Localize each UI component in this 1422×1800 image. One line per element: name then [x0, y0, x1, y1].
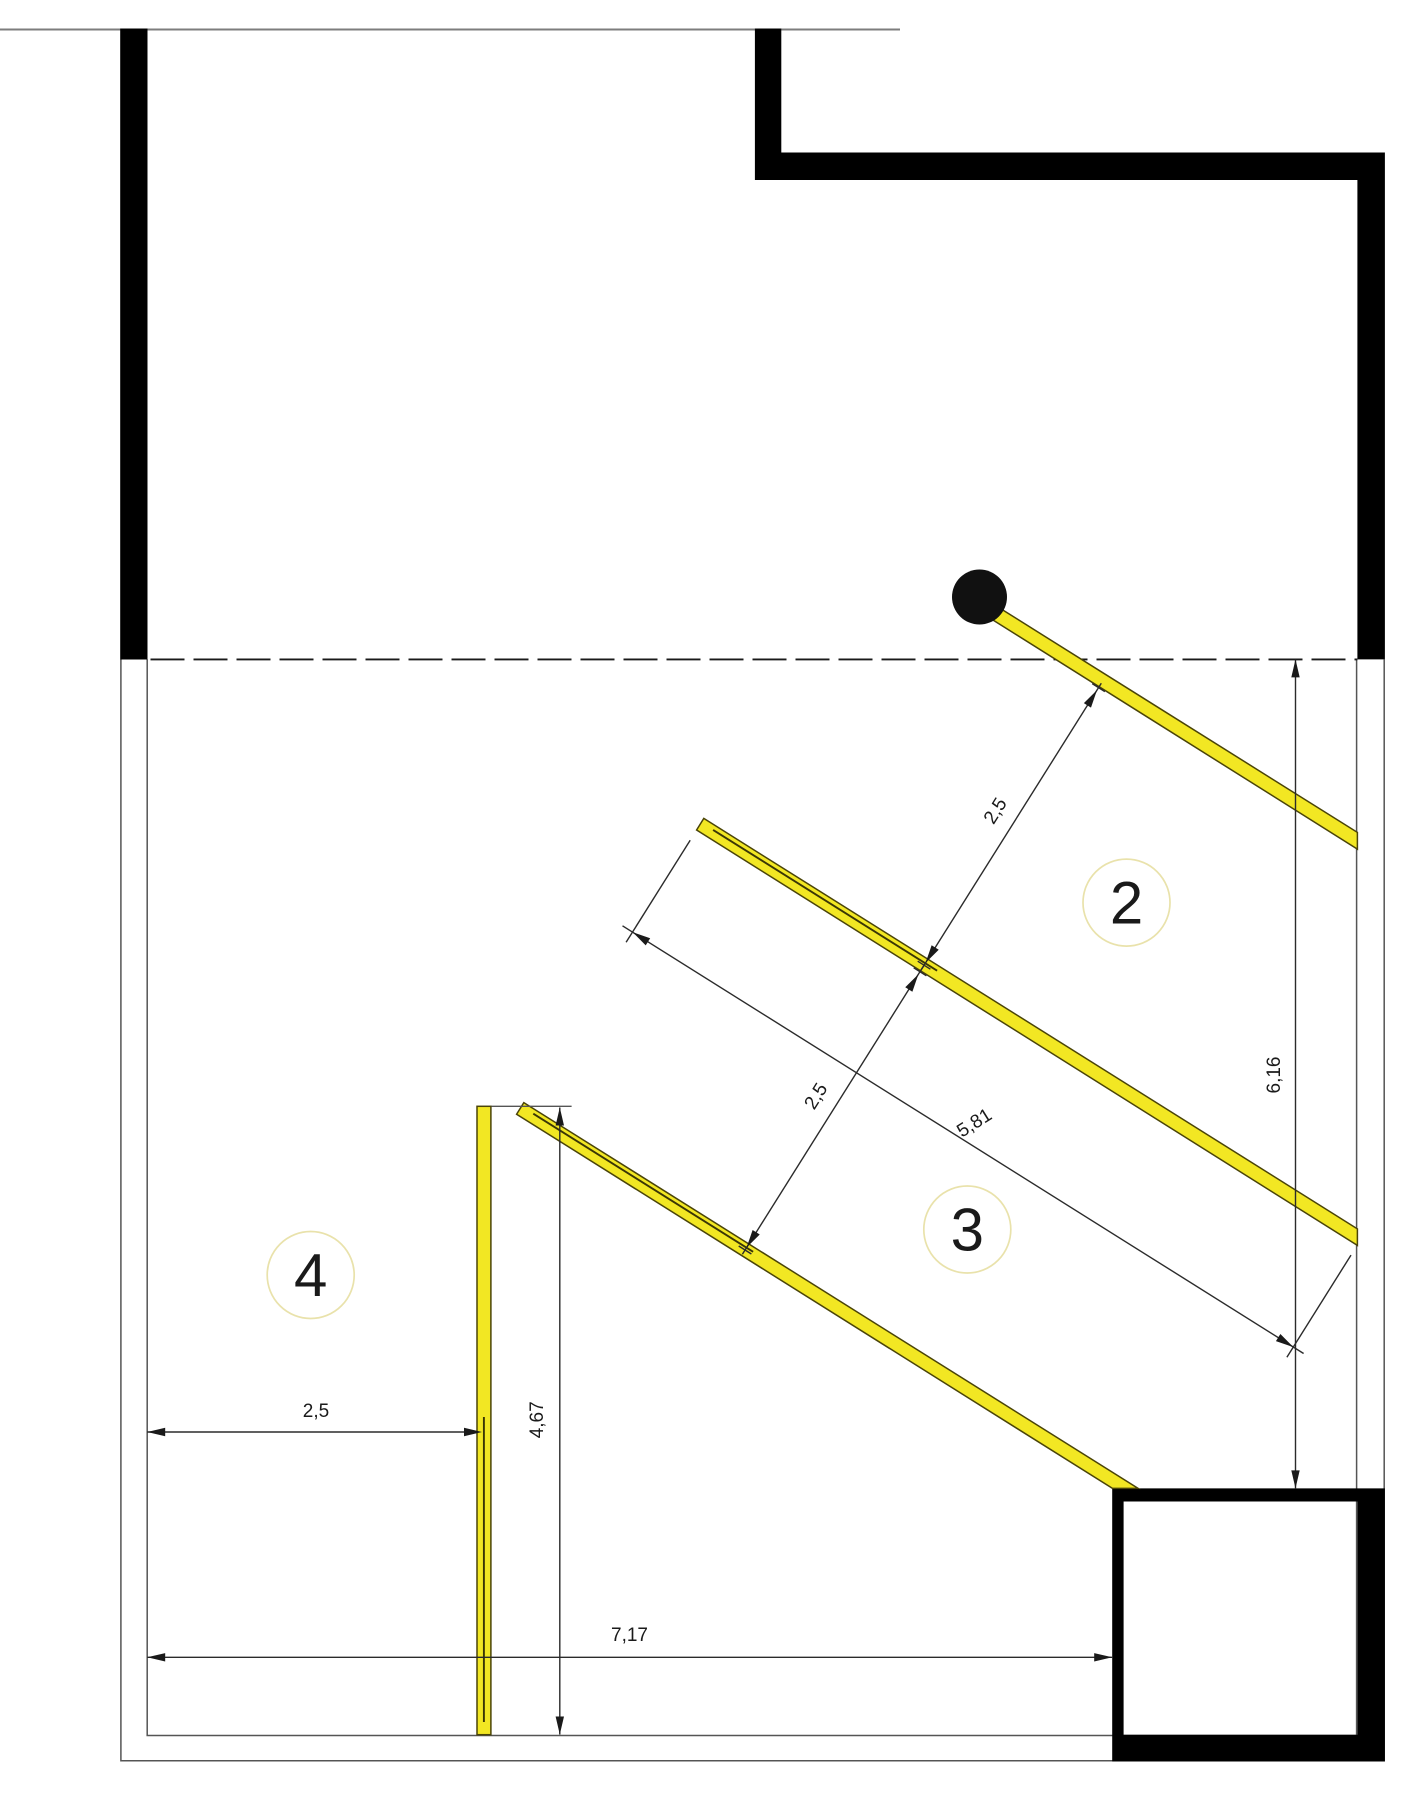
- svg-text:3: 3: [951, 1196, 984, 1263]
- svg-text:7,17: 7,17: [611, 1625, 648, 1646]
- svg-text:2: 2: [1110, 870, 1143, 937]
- svg-text:2,5: 2,5: [303, 1401, 329, 1422]
- svg-text:4,67: 4,67: [527, 1401, 548, 1438]
- svg-text:4: 4: [294, 1242, 327, 1309]
- svg-text:6,16: 6,16: [1264, 1057, 1285, 1094]
